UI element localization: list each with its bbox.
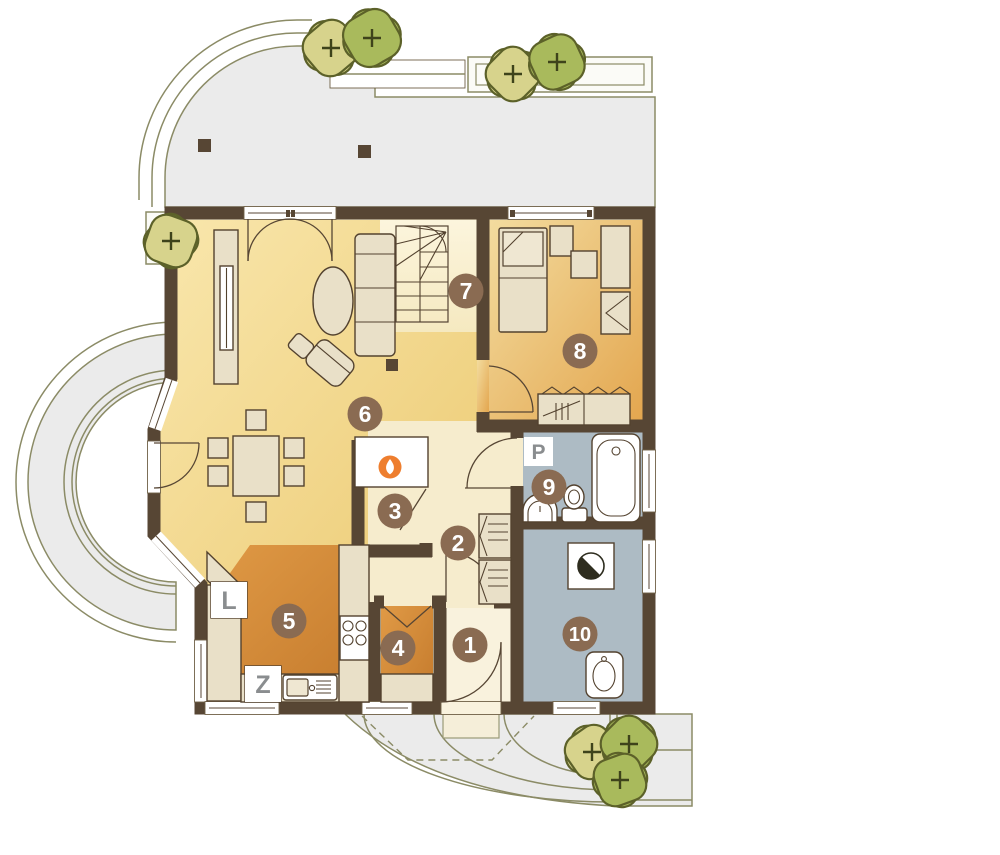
room-badge-4: 4 xyxy=(381,631,416,666)
bathtub xyxy=(592,434,640,522)
room-number: 7 xyxy=(460,278,473,304)
room-badge-6: 6 xyxy=(348,397,383,432)
room-number: 6 xyxy=(359,401,372,427)
room-number: 2 xyxy=(452,530,465,556)
room-badge-9: 9 xyxy=(532,470,567,505)
room-badge-1: 1 xyxy=(453,628,488,663)
marker-letter: L xyxy=(221,587,236,615)
pantry-shelf xyxy=(381,674,433,702)
marker-sink: Z xyxy=(245,666,281,702)
room-badge-5: 5 xyxy=(272,604,307,639)
marker-letter: P xyxy=(531,441,545,464)
floor-plan-page: 1 2 3 4 5 6 7 8 xyxy=(0,0,1000,855)
pantry-window-bottom xyxy=(362,702,412,715)
room-number: 4 xyxy=(392,635,405,661)
pillow xyxy=(503,232,543,266)
room-number: 8 xyxy=(574,338,587,364)
terrace-post xyxy=(198,139,211,152)
room-badge-10: 10 xyxy=(563,617,598,652)
marker-washer: P xyxy=(524,437,553,466)
boiler-icon xyxy=(568,543,614,589)
room-number: 10 xyxy=(569,624,591,646)
fireplace xyxy=(355,437,428,487)
stove xyxy=(340,616,369,660)
desk xyxy=(601,226,630,288)
nightstand xyxy=(550,226,573,256)
terrace-post xyxy=(358,145,371,158)
kitchen-sink xyxy=(283,675,337,700)
plant-stand xyxy=(386,359,398,371)
utility-window-bottom xyxy=(553,702,600,715)
marker-fridge: L xyxy=(211,582,247,618)
kitchen-window-left xyxy=(195,640,208,702)
room-badge-2: 2 xyxy=(441,526,476,561)
coffee-table xyxy=(313,267,353,335)
dining-chair xyxy=(284,466,304,486)
room-badge-8: 8 xyxy=(563,334,598,369)
room-number: 9 xyxy=(543,474,556,500)
floor-plan-canvas: 1 2 3 4 5 6 7 8 xyxy=(0,0,1000,855)
room-number: 5 xyxy=(283,608,296,634)
dining-table xyxy=(233,436,279,496)
dining-chair xyxy=(246,502,266,522)
bedroom-window xyxy=(508,207,594,220)
bathroom-window xyxy=(643,450,656,512)
utility-window-right xyxy=(643,540,656,593)
sofa xyxy=(355,234,395,356)
dining-chair xyxy=(246,410,266,430)
room-badge-3: 3 xyxy=(378,494,413,529)
dining-chair xyxy=(208,466,228,486)
utility-sink xyxy=(586,652,623,698)
kitchen-window-bottom xyxy=(205,702,279,715)
dining-chair xyxy=(208,438,228,458)
door-step xyxy=(443,714,499,738)
side-table xyxy=(571,251,597,278)
room-number: 1 xyxy=(464,632,477,658)
dining-chair xyxy=(284,438,304,458)
room-badge-7: 7 xyxy=(449,274,484,309)
marker-letter: Z xyxy=(255,671,270,699)
room-number: 3 xyxy=(389,498,402,524)
